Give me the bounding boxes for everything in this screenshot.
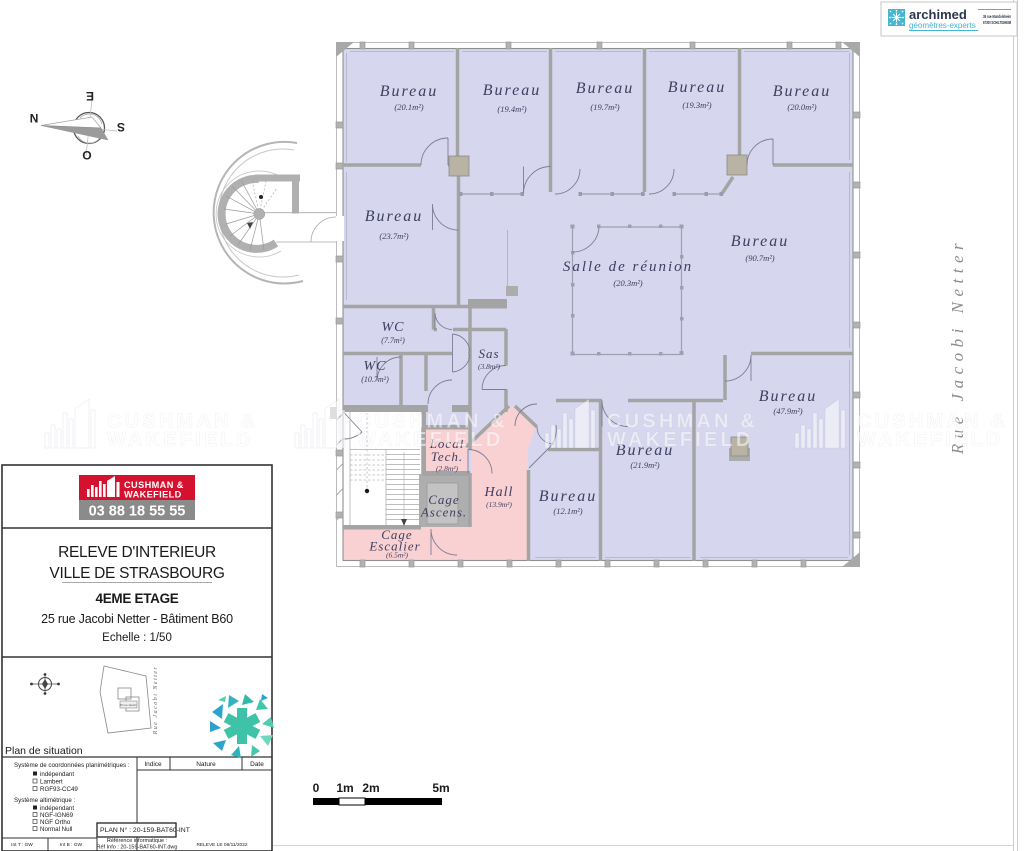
svg-text:Sas: Sas xyxy=(478,346,499,361)
svg-text:WC: WC xyxy=(382,320,405,335)
svg-text:03 88 18 55 55: 03 88 18 55 55 xyxy=(89,504,186,520)
svg-text:NGF Ortho: NGF Ortho xyxy=(40,819,71,826)
svg-text:WAKEFIELD: WAKEFIELD xyxy=(607,429,754,451)
svg-text:indépendant: indépendant xyxy=(40,805,74,812)
svg-text:(19.7m²): (19.7m²) xyxy=(590,102,619,112)
svg-text:Plan de situation: Plan de situation xyxy=(5,745,83,757)
svg-text:Salle de réunion: Salle de réunion xyxy=(563,259,693,275)
svg-text:25 rue Jacobi: 25 rue Jacobi xyxy=(120,703,137,707)
svg-text:Bureau: Bureau xyxy=(668,79,727,96)
svg-text:Ascens.: Ascens. xyxy=(420,505,467,520)
svg-text:(13.9m²): (13.9m²) xyxy=(486,500,512,509)
svg-text:Bureau: Bureau xyxy=(576,80,635,97)
svg-text:Echelle : 1/50: Echelle : 1/50 xyxy=(102,632,172,644)
svg-text:(23.7m²): (23.7m²) xyxy=(379,231,408,241)
svg-text:géomètres-experts: géomètres-experts xyxy=(909,21,976,30)
svg-text:VILLE DE STRASBOURG: VILLE DE STRASBOURG xyxy=(49,565,224,582)
svg-text:Bureau: Bureau xyxy=(380,83,439,100)
svg-text:Bureau: Bureau xyxy=(731,233,790,250)
svg-text:(19.3m²): (19.3m²) xyxy=(682,100,711,110)
svg-text:(12.1m²): (12.1m²) xyxy=(553,506,582,516)
svg-text:Bureau: Bureau xyxy=(365,208,424,225)
svg-text:Nature: Nature xyxy=(196,761,216,768)
svg-text:67300 SCHILTIGHEIM: 67300 SCHILTIGHEIM xyxy=(983,20,1011,25)
svg-text:RELEVE D'INTERIEUR: RELEVE D'INTERIEUR xyxy=(58,544,216,561)
svg-text:Int T : GW: Int T : GW xyxy=(11,842,33,848)
svg-text:Bureau: Bureau xyxy=(773,83,832,100)
svg-text:(7.7m²): (7.7m²) xyxy=(381,336,405,345)
svg-text:(20.0m²): (20.0m²) xyxy=(787,102,816,112)
svg-text:N: N xyxy=(30,111,39,125)
svg-text:(3.8m²): (3.8m²) xyxy=(478,362,501,371)
svg-text:Indice: Indice xyxy=(144,761,162,768)
svg-text:35 rue Mundolsheim: 35 rue Mundolsheim xyxy=(983,14,1011,19)
svg-text:NGF-IGN69: NGF-IGN69 xyxy=(40,812,74,819)
svg-text:4EME ETAGE: 4EME ETAGE xyxy=(95,591,178,606)
svg-text:Rue Jacobi Netter: Rue Jacobi Netter xyxy=(153,666,159,736)
svg-text:(2.8m²): (2.8m²) xyxy=(436,464,459,473)
svg-text:(6.5m²): (6.5m²) xyxy=(386,551,409,560)
svg-text:indépendant: indépendant xyxy=(40,771,74,778)
svg-text:WAKEFIELD: WAKEFIELD xyxy=(857,429,1004,451)
svg-text:5m: 5m xyxy=(432,781,449,795)
svg-text:(20.1m²): (20.1m²) xyxy=(394,102,423,112)
svg-text:Int B : GW: Int B : GW xyxy=(60,842,83,848)
svg-text:(20.3m²): (20.3m²) xyxy=(613,278,642,288)
svg-text:CUSHMAN &: CUSHMAN & xyxy=(124,480,184,490)
svg-text:(19.4m²): (19.4m²) xyxy=(497,104,526,114)
svg-text:Date: Date xyxy=(250,761,264,768)
svg-text:Système altimétrique :: Système altimétrique : xyxy=(14,797,75,804)
svg-text:RGF93-CC49: RGF93-CC49 xyxy=(40,786,78,793)
svg-text:(10.7m²): (10.7m²) xyxy=(361,375,389,384)
svg-text:Référence informatique :: Référence informatique : xyxy=(107,838,168,844)
svg-text:S: S xyxy=(117,120,125,134)
svg-text:Bureau: Bureau xyxy=(759,388,818,405)
svg-text:(21.9m²): (21.9m²) xyxy=(630,460,659,470)
svg-text:Bureau: Bureau xyxy=(483,82,542,99)
svg-text:Normal Null: Normal Null xyxy=(40,826,72,833)
svg-text:(47.9m²): (47.9m²) xyxy=(773,406,802,416)
svg-text:E: E xyxy=(86,89,94,103)
svg-text:RELEVE LE 06/11/2022: RELEVE LE 06/11/2022 xyxy=(196,842,247,848)
svg-text:WAKEFIELD: WAKEFIELD xyxy=(124,490,182,500)
svg-text:1m: 1m xyxy=(336,781,353,795)
svg-text:WC: WC xyxy=(364,359,387,374)
svg-text:WAKEFIELD: WAKEFIELD xyxy=(107,429,254,451)
svg-text:Lambert: Lambert xyxy=(40,779,63,786)
svg-text:25 rue Jacobi Netter - Bâtimen: 25 rue Jacobi Netter - Bâtiment B60 xyxy=(41,612,233,626)
svg-text:WAKEFIELD: WAKEFIELD xyxy=(357,429,504,451)
svg-text:Réf Info : 20-159-BAT60-INT.dw: Réf Info : 20-159-BAT60-INT.dwg xyxy=(97,845,178,851)
svg-text:O: O xyxy=(82,148,91,162)
svg-text:PLAN N° : 20-159-BAT60-INT: PLAN N° : 20-159-BAT60-INT xyxy=(100,826,190,834)
svg-text:2m: 2m xyxy=(362,781,379,795)
svg-text:Système de coordonnées planimé: Système de coordonnées planimétriques : xyxy=(14,762,130,769)
svg-text:0: 0 xyxy=(313,781,320,795)
svg-text:archimed: archimed xyxy=(909,7,967,22)
svg-text:Tech.: Tech. xyxy=(431,449,463,464)
svg-text:Bureau: Bureau xyxy=(539,488,598,505)
svg-text:Hall: Hall xyxy=(484,485,514,500)
svg-text:(90.7m²): (90.7m²) xyxy=(745,253,774,263)
